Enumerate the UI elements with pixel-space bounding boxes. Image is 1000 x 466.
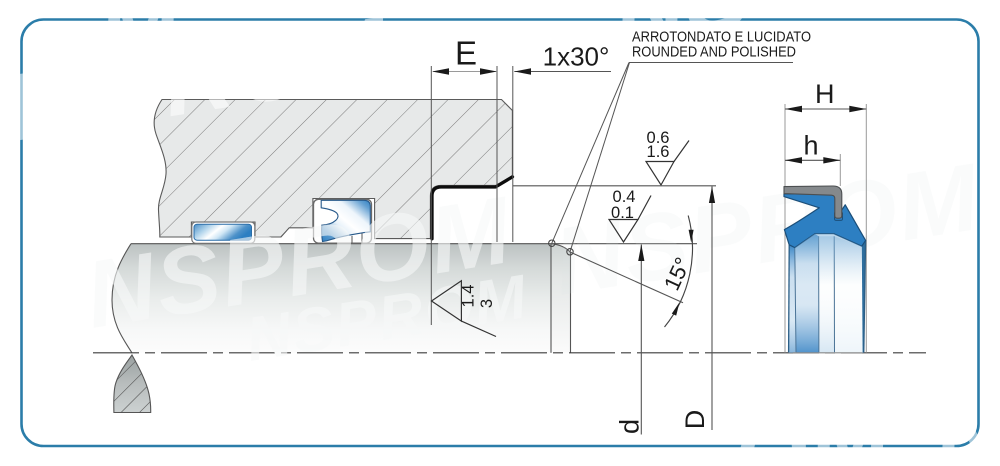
svg-text:M: M: [92, 0, 189, 89]
svg-text:ROUNDED AND POLISHED: ROUNDED AND POLISHED: [632, 44, 796, 61]
svg-text:1.4: 1.4: [460, 285, 478, 308]
svg-text:D: D: [680, 410, 710, 430]
svg-text:1.6: 1.6: [647, 143, 670, 161]
svg-text:E: E: [455, 35, 477, 72]
svg-text:h: h: [803, 131, 818, 161]
svg-text:0.1: 0.1: [611, 204, 634, 222]
svg-text:1x30°: 1x30°: [543, 42, 610, 72]
svg-text:H: H: [815, 79, 835, 109]
svg-text:d: d: [615, 419, 645, 434]
svg-text:3: 3: [478, 299, 496, 308]
